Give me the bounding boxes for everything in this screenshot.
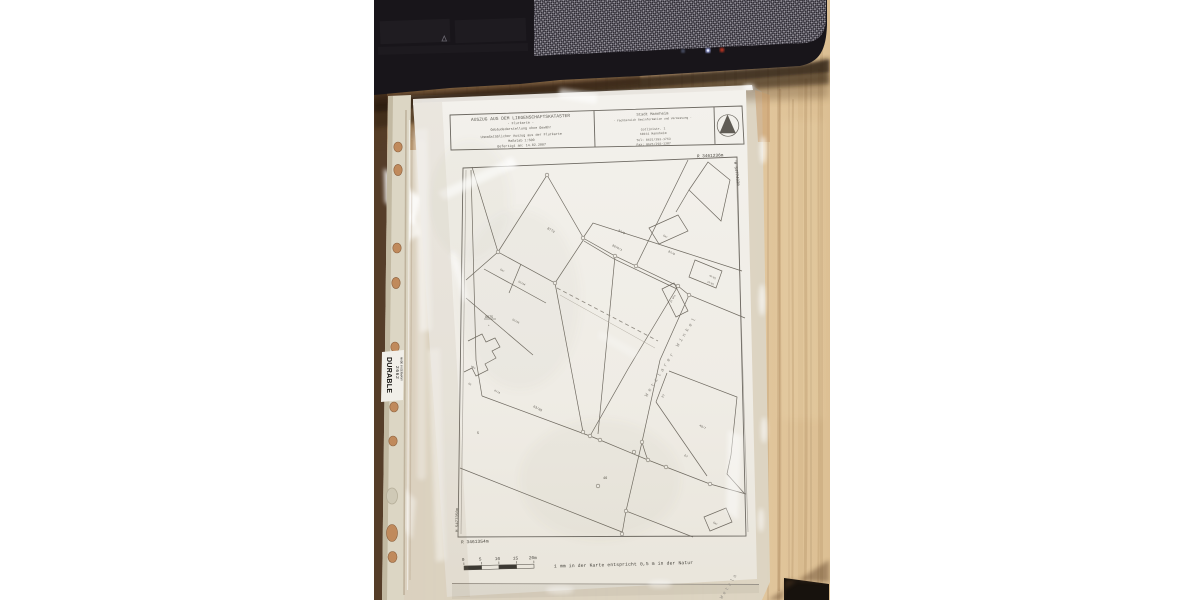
svg-text:15: 15 [513, 557, 519, 562]
svg-text:10: 10 [495, 557, 501, 562]
svg-text:20m: 20m [529, 556, 537, 561]
svg-text:DURABLE: DURABLE [385, 357, 392, 393]
svg-text:2662: 2662 [395, 366, 400, 379]
svg-text:5: 5 [477, 432, 479, 436]
svg-text:MADE IN GERMANY: MADE IN GERMANY [400, 357, 403, 381]
